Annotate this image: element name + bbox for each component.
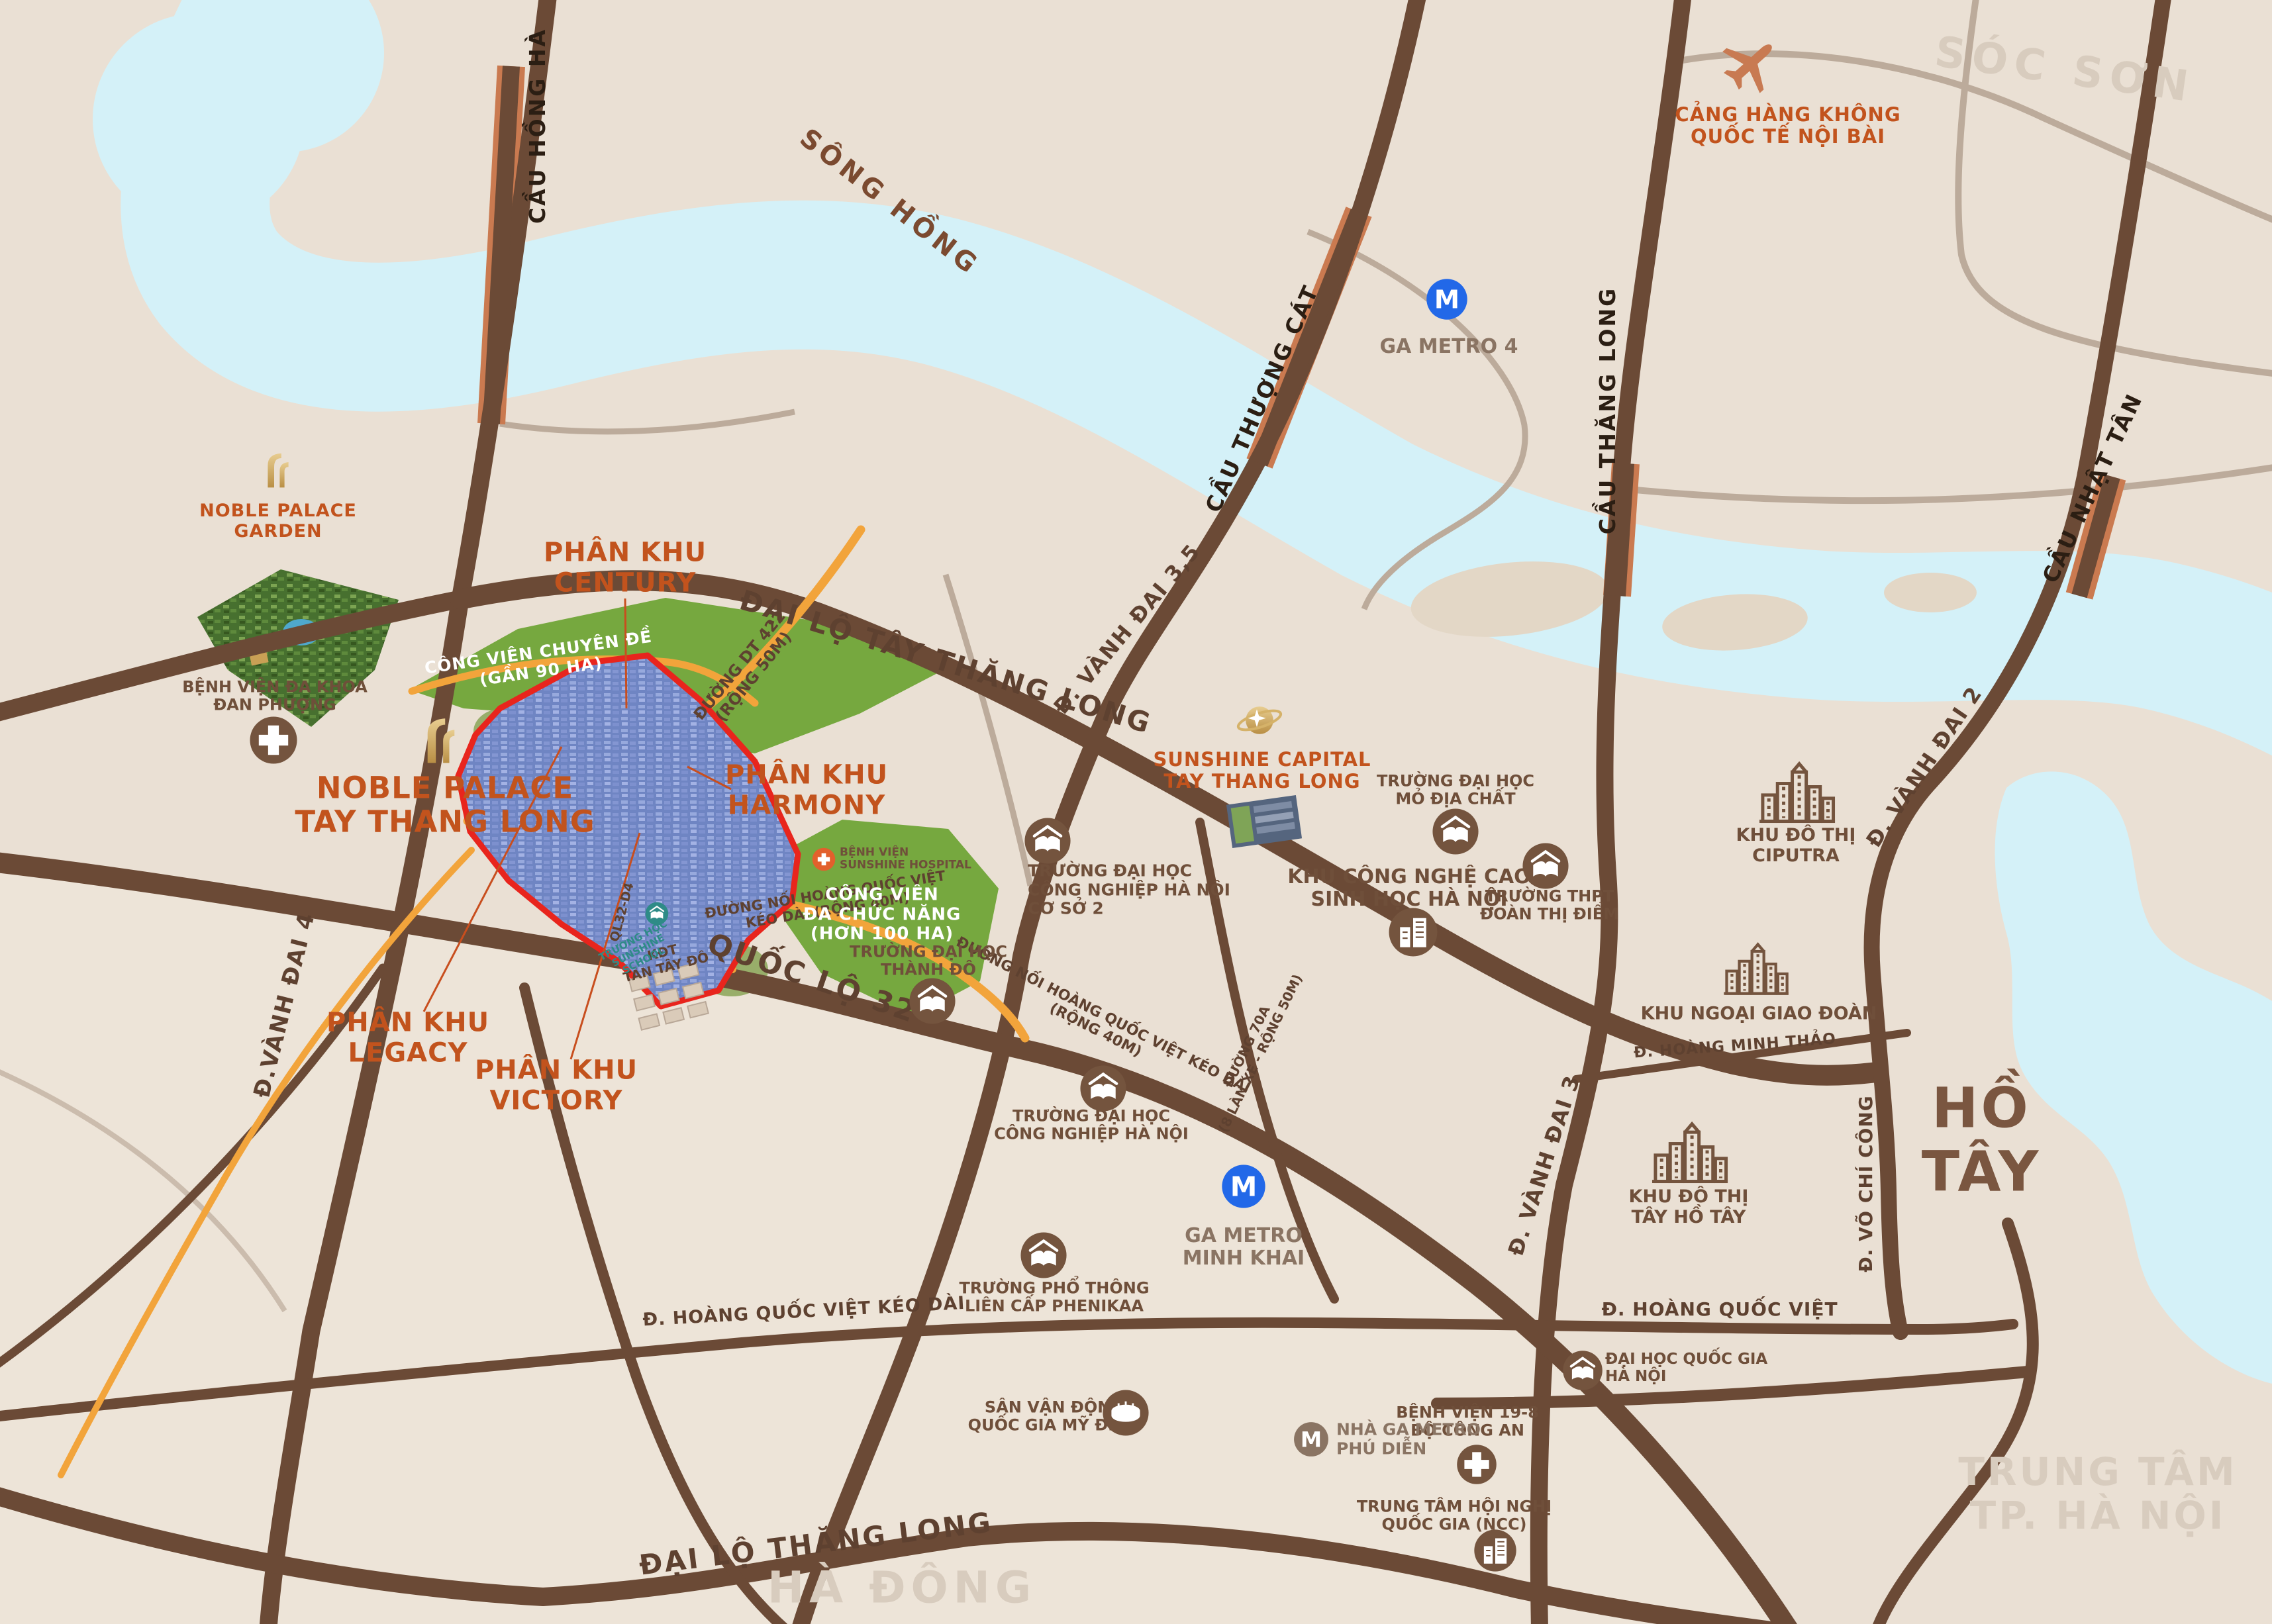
map-canvas: SÓC SƠNHÀ ĐÔNGTRUNG TÂMTP. HÀ NỘIHỒTÂYSÔ… [0,0,2272,1624]
label-noble-palace-tay-thang-long: NOBLE PALACETAY THANG LONG [295,771,595,839]
poi-dai-hoc-mo-dia-chat-label: TRƯỜNG ĐẠI HỌCMỎ ĐỊA CHẤT [1377,773,1534,809]
khu-cong-nghe-cao-building-icon [1388,907,1438,957]
metro-minh-khai-badge-icon: M [1221,1164,1266,1209]
label-noi-bai-airport: CẢNG HÀNG KHÔNGQUỐC TẾ NỘI BÀI [1675,104,1901,148]
dai-hoc-cong-nghiep-cs2-book-icon [1024,817,1071,865]
poi-khu-do-thi-tay-ho-tay-label: KHU ĐÔ THỊTÂY HỒ TÂY [1629,1187,1749,1228]
road-hoang-quoc-viet-label: Đ. HOÀNG QUỐC VIỆT [1601,1299,1838,1320]
poi-dai-hoc-thanh-do-label: TRƯỜNG ĐẠI HỌCTHÀNH ĐÔ [850,943,1007,980]
airplane-icon [1716,32,1783,98]
ncc-building-icon [1473,1529,1517,1572]
bridge-cau-hong-ha-label: CẦU HỒNG HÀ [525,28,550,224]
doan-thi-diem-book-icon [1522,842,1569,890]
label-phan-khu-century: PHÂN KHUCENTURY [544,538,707,598]
poi-benh-vien-dan-phuong-label: BỆNH VIỆN ĐA KHOAĐAN PHƯỢNG [182,679,368,715]
label-phan-khu-harmony: PHÂN KHUHARMONY [725,760,888,820]
poi-benh-vien-sunshine-label: BỆNH VIỆNSUNSHINE HOSPITAL [840,847,971,873]
poi-dai-hoc-quoc-gia-label: ĐẠI HỌC QUỐC GIAHÀ NỘI [1605,1351,1767,1385]
poi-trung-tam-hoi-nghi-label: TRUNG TÂM HỘI NGHỊQUỐC GIA (NCC) [1357,1498,1552,1535]
ngoai-giao-doan-buildings-icon [1721,928,1791,998]
noble-palace-garden-logo-icon [258,450,298,490]
svg-text:M: M [1301,1427,1322,1452]
mo-dia-chat-book-icon [1432,808,1479,855]
dai-hoc-cong-nghiep-book-icon [1079,1065,1127,1112]
road-vo-chi-cong-label: Đ. VÕ CHÍ CÔNG [1855,1095,1877,1272]
poi-khu-do-thi-ciputra-label: KHU ĐÔ THỊCIPUTRA [1736,826,1856,867]
ciputra-buildings-icon [1756,744,1838,826]
thanh-do-book-icon [909,977,956,1025]
poi-dai-hoc-cong-nghiep-label: TRƯỜNG ĐẠI HỌCCÔNG NGHIỆP HÀ NỘI [994,1108,1189,1144]
bridge-cau-thang-long-label: CẦU THĂNG LONG [1595,287,1620,535]
metro-ga-metro-4-label: GA METRO 4 [1379,336,1518,358]
poi-phenikaa-label: TRƯỜNG PHỔ THÔNGLIÊN CẤP PHENIKAA [959,1280,1149,1316]
dan-phuong-hospital-cross-icon [249,716,298,765]
label-sunshine-capital-tay-thang-long: SUNSHINE CAPITALTAY THANG LONG [1153,749,1371,792]
poi-khu-ngoai-giao-doan-label: KHU NGOẠI GIAO ĐOÀN [1641,1004,1877,1025]
label-noble-palace-garden: NOBLE PALACEGARDEN [199,501,357,542]
noble-palace-ttl-logo-icon [415,714,467,766]
label-phan-khu-victory: PHÂN KHUVICTORY [475,1055,638,1116]
sunshine-planet-icon [1233,694,1286,747]
park-cong-vien-da-chuc-nang-label: CÔNG VIÊNĐA CHỨC NĂNG(HƠN 100 HA) [803,886,962,945]
phenikaa-book-icon [1020,1231,1067,1279]
dai-hoc-quoc-gia-book-icon [1562,1350,1603,1391]
my-dinh-stadium-icon [1102,1389,1150,1437]
svg-text:M: M [1230,1170,1258,1202]
sunshine-hospital-cross-icon [812,847,836,871]
river-island [1884,573,1977,612]
metro-phu-dien-badge-icon: M [1293,1421,1329,1457]
label-phan-khu-legacy: PHÂN KHULEGACY [326,1008,489,1068]
svg-text:M: M [1434,285,1459,314]
region-ha-dong-label: HÀ ĐÔNG [767,1562,1036,1612]
metro-ga-metro-minh-khai-label: GA METROMINH KHAI [1183,1225,1305,1270]
metro-4-badge-icon: M [1426,278,1468,320]
poi-thpt-doan-thi-diem-label: TRƯỜNG THPTĐOÀN THỊ ĐIỂM [1480,888,1619,924]
poi-dai-hoc-cong-nghiep-cs2-label: TRƯỜNG ĐẠI HỌCCÔNG NGHIỆP HÀ NỘICƠ SỞ 2 [1028,861,1230,918]
tay-ho-tay-buildings-icon [1649,1104,1731,1186]
lake-ho-tay-label: HỒTÂY [1922,1076,2042,1204]
sunshine-school-book-icon [645,902,669,926]
region-trung-tam-hanoi-label: TRUNG TÂMTP. HÀ NỘI [1958,1450,2237,1537]
benh-vien-19-8-cross-icon [1456,1444,1497,1485]
